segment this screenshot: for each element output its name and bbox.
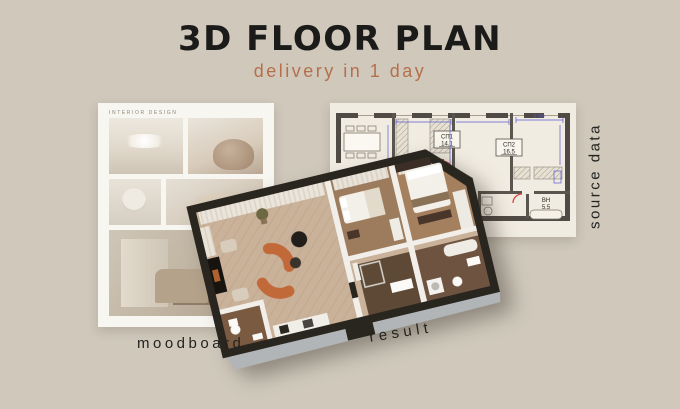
room-name: ВН: [542, 198, 550, 204]
moodboard-photo-armchair: [188, 118, 263, 174]
caption-source-data: source data: [587, 123, 604, 229]
page-subtitle: delivery in 1 day: [0, 61, 680, 82]
moodboard-card-title: interior design: [109, 109, 263, 118]
moodboard-photo-pendant-light: [109, 118, 183, 174]
dining-set: [344, 126, 380, 158]
header: 3D FLOOR PLAN delivery in 1 day: [0, 22, 680, 82]
caption-moodboard: moodboard: [137, 335, 244, 352]
page-title: 3D FLOOR PLAN: [0, 22, 680, 58]
moodboard-photo-vase-sculpture: [109, 179, 161, 225]
dimension-value: 3 700: [533, 114, 545, 119]
moodboard-row: [109, 118, 263, 174]
room-name: СП2: [503, 143, 516, 149]
poster-background: 3D FLOOR PLAN delivery in 1 day interior…: [0, 0, 680, 409]
room-label-sp2: СП2 16.5: [496, 139, 522, 156]
room-label-bath: ВН 5.5: [541, 198, 551, 211]
room-name: СП1: [441, 135, 454, 141]
